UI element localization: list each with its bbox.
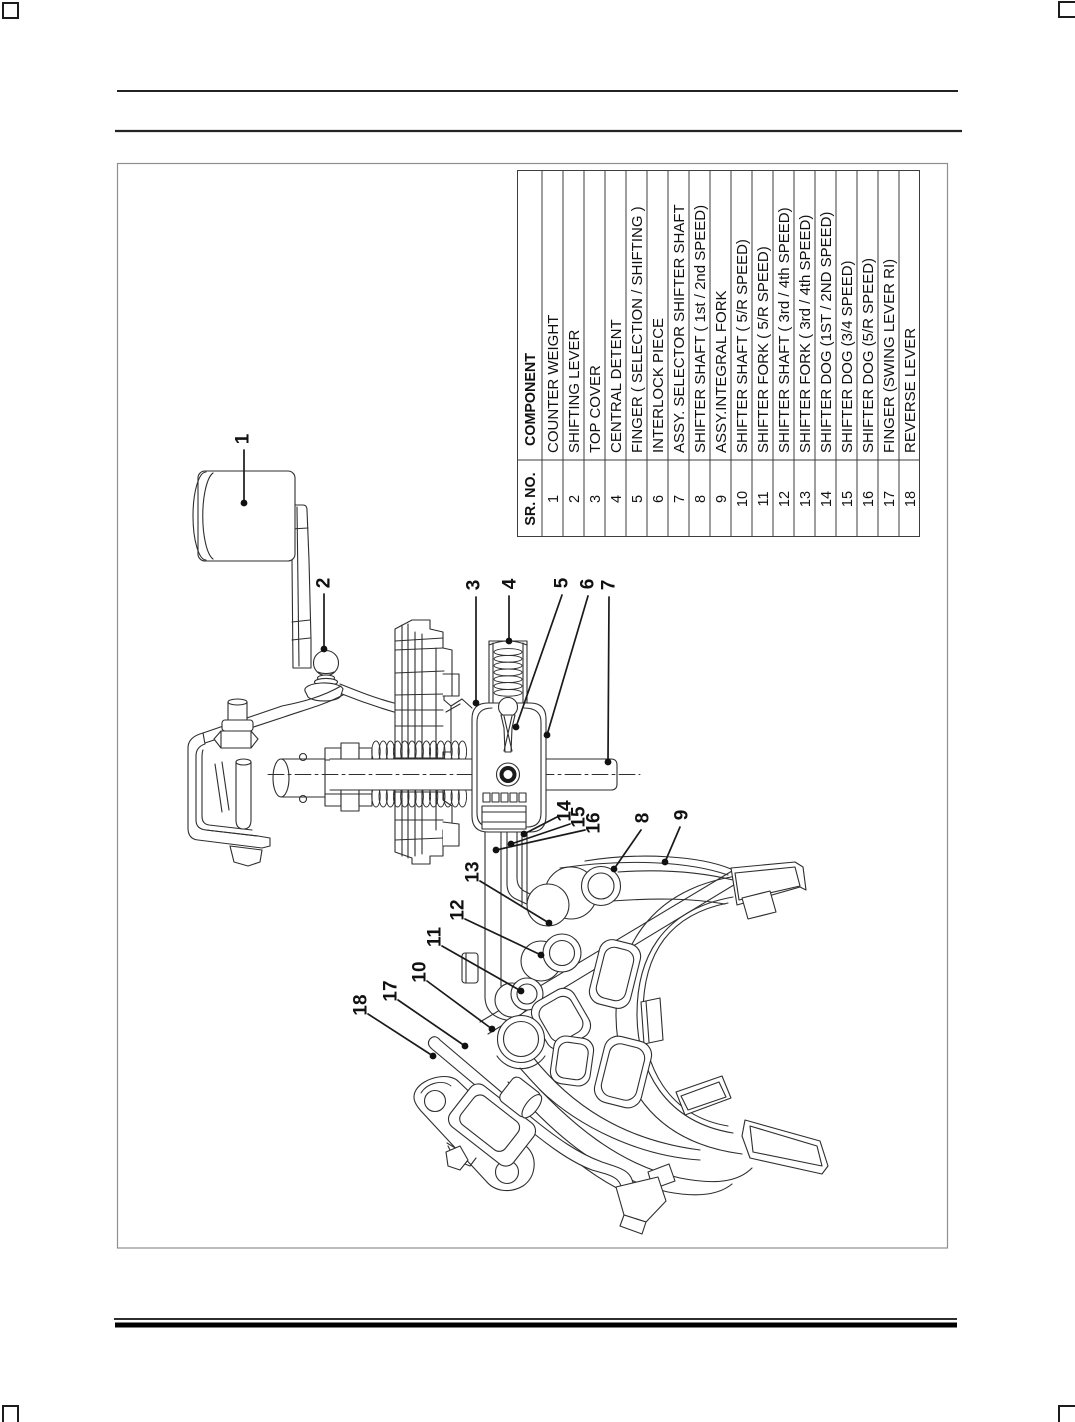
svg-text:9: 9: [672, 810, 693, 821]
svg-text:3: 3: [464, 580, 485, 591]
svg-text:10: 10: [735, 491, 751, 507]
svg-text:SHIFTER SHAFT ( 1st / 2nd SPEE: SHIFTER SHAFT ( 1st / 2nd SPEED): [692, 205, 709, 453]
svg-text:18: 18: [351, 994, 372, 1015]
svg-text:12: 12: [448, 899, 469, 920]
svg-text:FINGER (SWING LEVER RI): FINGER (SWING LEVER RI): [881, 259, 898, 453]
svg-text:5: 5: [552, 577, 573, 588]
svg-text:7: 7: [599, 580, 620, 591]
svg-text:TOP COVER: TOP COVER: [587, 365, 604, 453]
svg-text:6: 6: [651, 495, 667, 503]
svg-text:SHIFTER FORK ( 5/R SPEED): SHIFTER FORK ( 5/R SPEED): [755, 246, 772, 453]
svg-text:SHIFTER SHAFT ( 3rd / 4th SPEE: SHIFTER SHAFT ( 3rd / 4th SPEED): [776, 207, 793, 453]
svg-text:SR. NO.: SR. NO.: [523, 472, 539, 525]
svg-text:1: 1: [546, 495, 562, 503]
svg-text:SHIFTER SHAFT ( 5/R SPEED): SHIFTER SHAFT ( 5/R SPEED): [734, 239, 751, 453]
svg-text:8: 8: [633, 813, 654, 824]
svg-text:FINGER ( SELECTION / SHIFTING: FINGER ( SELECTION / SHIFTING ): [629, 206, 646, 453]
svg-text:18: 18: [903, 491, 919, 507]
svg-text:16: 16: [861, 491, 877, 507]
svg-text:4: 4: [500, 578, 521, 589]
svg-text:17: 17: [882, 491, 898, 507]
svg-text:5: 5: [630, 495, 646, 503]
svg-text:14: 14: [819, 491, 835, 507]
svg-text:SHIFTER FORK ( 3rd / 4th SPEED: SHIFTER FORK ( 3rd / 4th SPEED): [797, 215, 814, 453]
svg-text:3: 3: [588, 495, 604, 503]
svg-text:SHIFTER DOG (1ST / 2ND SPEED): SHIFTER DOG (1ST / 2ND SPEED): [818, 212, 835, 453]
svg-text:ASSY. SELECTOR SHIFTER SHAFT: ASSY. SELECTOR SHIFTER SHAFT: [671, 204, 688, 453]
svg-text:ASSY.INTEGRAL FORK: ASSY.INTEGRAL FORK: [713, 290, 730, 453]
svg-text:6: 6: [578, 579, 599, 590]
svg-text:CENTRAL DETENT: CENTRAL DETENT: [608, 319, 625, 453]
svg-text:10: 10: [410, 961, 431, 982]
svg-text:REVERSE LEVER: REVERSE LEVER: [902, 328, 919, 453]
svg-text:INTERLOCK PIECE: INTERLOCK PIECE: [650, 318, 667, 453]
svg-text:11: 11: [756, 491, 772, 506]
svg-text:7: 7: [672, 495, 688, 503]
svg-text:12: 12: [777, 491, 793, 507]
svg-text:15: 15: [840, 491, 856, 507]
svg-text:SHIFTING LEVER: SHIFTING LEVER: [566, 329, 583, 453]
svg-text:13: 13: [463, 861, 484, 882]
svg-text:4: 4: [609, 495, 625, 503]
svg-text:16: 16: [584, 812, 605, 833]
svg-text:SHIFTER DOG (5/R SPEED): SHIFTER DOG (5/R SPEED): [860, 258, 877, 453]
svg-text:SHIFTER DOG (3/4 SPEED): SHIFTER DOG (3/4 SPEED): [839, 260, 856, 453]
svg-text:13: 13: [798, 491, 814, 507]
svg-text:COUNTER WEIGHT: COUNTER WEIGHT: [545, 315, 562, 453]
svg-text:2: 2: [567, 495, 583, 503]
svg-text:COMPONENT: COMPONENT: [523, 353, 539, 446]
svg-text:11: 11: [425, 927, 446, 948]
svg-text:1: 1: [233, 433, 254, 444]
svg-text:2: 2: [314, 578, 335, 589]
svg-text:9: 9: [714, 495, 730, 503]
svg-text:17: 17: [381, 980, 402, 1001]
svg-text:8: 8: [693, 495, 709, 503]
